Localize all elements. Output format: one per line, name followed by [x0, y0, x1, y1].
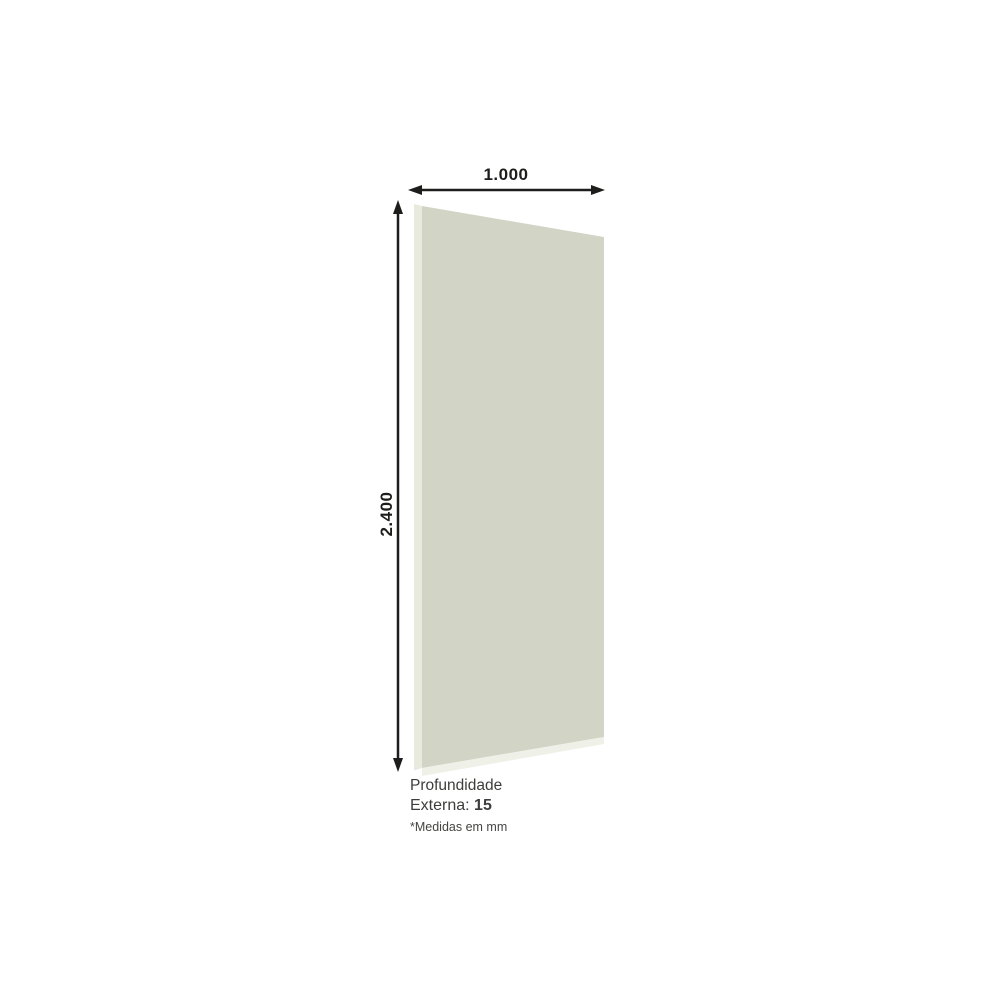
caption-title: Profundidade	[410, 776, 507, 795]
panel-left-edge-face	[414, 204, 422, 771]
caption-measurement-note: *Medidas em mm	[410, 820, 507, 835]
height-dimension-arrow-bottom-icon	[393, 758, 403, 772]
product-dimension-diagram: 1.000 2.400 Profundidade Externa: 15 *Me…	[0, 0, 1000, 1000]
caption-depth-line: Externa: 15	[410, 795, 507, 816]
height-dimension-arrow-top-icon	[393, 200, 403, 214]
panel-front-face	[422, 206, 604, 768]
width-dimension-arrow-left-icon	[408, 185, 422, 195]
width-dimension-label: 1.000	[407, 165, 605, 185]
panel-diagram-svg	[0, 0, 1000, 1000]
height-dimension-label: 2.400	[377, 454, 397, 574]
caption-depth-value: 15	[474, 797, 492, 814]
width-dimension-arrow-right-icon	[591, 185, 605, 195]
caption-depth-label: Externa:	[410, 797, 470, 814]
caption-block: Profundidade Externa: 15 *Medidas em mm	[410, 776, 507, 835]
